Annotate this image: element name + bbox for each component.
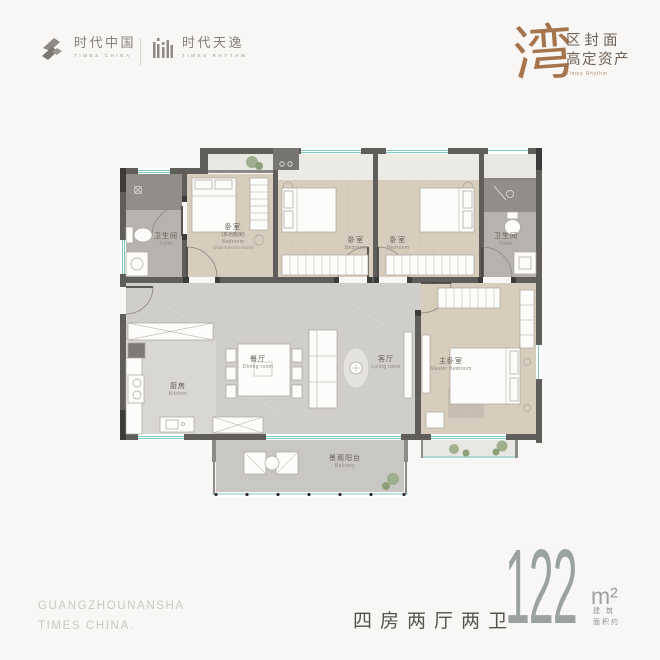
location-line2: TIMES CHINA. xyxy=(38,616,185,636)
location-caption: GUANGZHOUNANSHA TIMES CHINA. xyxy=(38,596,185,636)
brand-primary-en: TIMES CHINA xyxy=(74,53,136,58)
brand-text: 时代中国 TIMES CHINA xyxy=(74,36,136,58)
area-note-line2: 面积约 xyxy=(593,617,620,628)
area-note: 建 筑 面积约 xyxy=(593,606,620,628)
area-value: 122 xyxy=(505,546,577,629)
unit-layout-text: 四房两厅两卫 xyxy=(353,606,515,633)
tagline-line1: 区封面 xyxy=(566,34,630,49)
location-line1: GUANGZHOUNANSHA xyxy=(38,596,185,616)
floorplan: 卫生间 Toilet 卧室 (多功能房) Bedroom (Multi-func… xyxy=(116,140,546,500)
tagline-line2: 高定资产 xyxy=(566,53,630,68)
tagline: 区封面 高定资产 Times Rhythm xyxy=(566,34,630,77)
area-note-line1: 建 筑 xyxy=(593,606,620,617)
times-rhythm-logo-icon xyxy=(152,36,174,64)
brand-secondary-en: TIMES RHYTHM xyxy=(182,53,247,58)
brand-primary-cn: 时代中国 xyxy=(74,36,136,49)
brand-secondary-cn: 时代天逸 xyxy=(182,36,247,49)
brand-divider xyxy=(140,38,141,66)
brand-times-rhythm: 时代天逸 TIMES RHYTHM xyxy=(152,36,247,64)
tagline-sub: Times Rhythm xyxy=(566,71,630,77)
times-china-logo-icon xyxy=(40,36,66,64)
floorplan-drawing xyxy=(116,140,546,500)
floorplan-poster: 时代中国 TIMES CHINA 时代天逸 TIMES RHYTHM 湾 区封面… xyxy=(0,0,660,660)
brand-times-china: 时代中国 TIMES CHINA xyxy=(40,36,136,64)
brand-text: 时代天逸 TIMES RHYTHM xyxy=(182,36,247,58)
